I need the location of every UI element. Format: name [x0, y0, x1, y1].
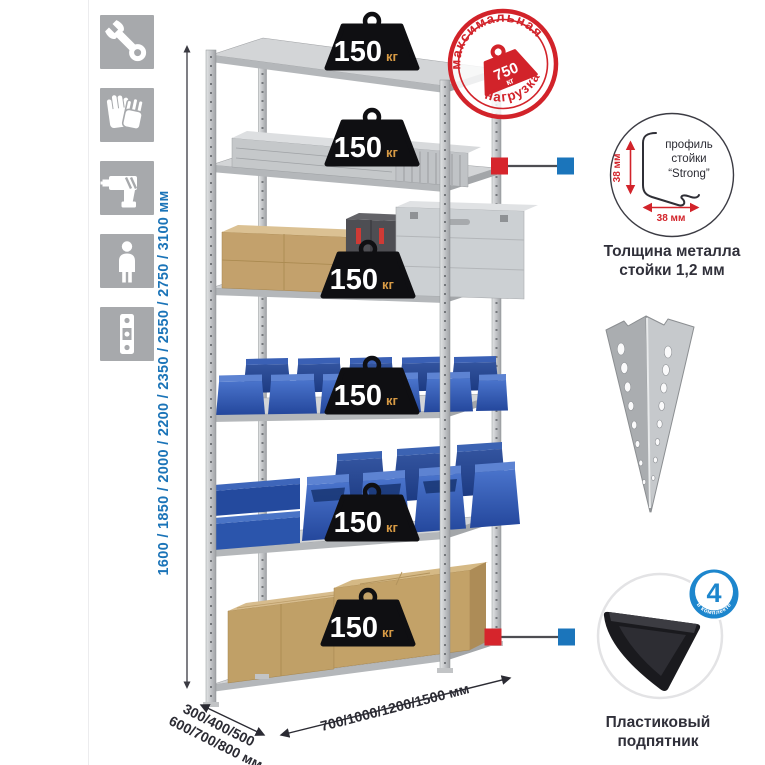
svg-text:кг: кг: [382, 277, 395, 292]
svg-text:кг: кг: [386, 145, 399, 160]
foot-caption-line2: подпятник: [617, 733, 698, 750]
profile-label-line1: профиль: [665, 139, 713, 151]
svg-text:150: 150: [334, 132, 382, 164]
scene-graphic: 1600 / 1850 / 2000 / 2200 / 2350 / 2550 …: [0, 0, 765, 765]
included-count-badge: 4 в комплекте: [689, 569, 740, 620]
badge-count: 4: [706, 578, 721, 608]
svg-text:кг: кг: [386, 520, 399, 535]
svg-text:150: 150: [334, 36, 382, 68]
aluminum-case-large: [396, 201, 538, 299]
profile-dim-horizontal: 38 мм: [657, 213, 686, 224]
width-dimension-label: 700/1000/1200/1500 мм: [319, 680, 471, 734]
profile-caption-line1: Толщина металла: [604, 243, 741, 260]
callout-marker-blue-bottom: [558, 629, 575, 646]
profile-detail: 38 мм 38 мм профиль стойки “Strong” Толщ…: [604, 114, 741, 280]
max-load-stamp: максимальная нагрузка 750 кг: [433, 0, 572, 133]
load-badge-1: 150 кг: [327, 14, 417, 68]
svg-text:150: 150: [330, 264, 378, 296]
svg-text:кг: кг: [386, 393, 399, 408]
foot-caption-line1: Пластиковый: [606, 714, 711, 731]
angle-post-graphic: [606, 316, 694, 512]
load-badge-2: 150 кг: [327, 110, 417, 164]
euro-crate-stack: [214, 478, 300, 550]
height-dimension: 1600 / 1850 / 2000 / 2200 / 2350 / 2550 …: [156, 45, 191, 689]
profile-label-line3: “Strong”: [668, 168, 710, 180]
callout-marker-red-top: [491, 158, 508, 175]
foot-detail: 4 в комплекте Пластиковый подпятник: [598, 569, 740, 751]
profile-caption-line2: стойки 1,2 мм: [619, 262, 724, 279]
callout-marker-blue-top: [557, 158, 574, 175]
profile-label-line2: стойки: [671, 153, 706, 165]
svg-text:кг: кг: [382, 625, 395, 640]
svg-text:150: 150: [334, 507, 382, 539]
callout-marker-red-bottom: [485, 629, 502, 646]
svg-text:150: 150: [330, 612, 378, 644]
svg-text:150: 150: [334, 380, 382, 412]
profile-dim-vertical: 38 мм: [612, 154, 623, 183]
shelving-infographic: 1600 / 1850 / 2000 / 2200 / 2350 / 2550 …: [0, 0, 765, 765]
svg-text:кг: кг: [386, 49, 399, 64]
height-dimension-label: 1600 / 1850 / 2000 / 2200 / 2350 / 2550 …: [156, 191, 172, 576]
shelf-load-badges: 150 кг 150 кг 150 кг 150 кг: [323, 14, 417, 644]
